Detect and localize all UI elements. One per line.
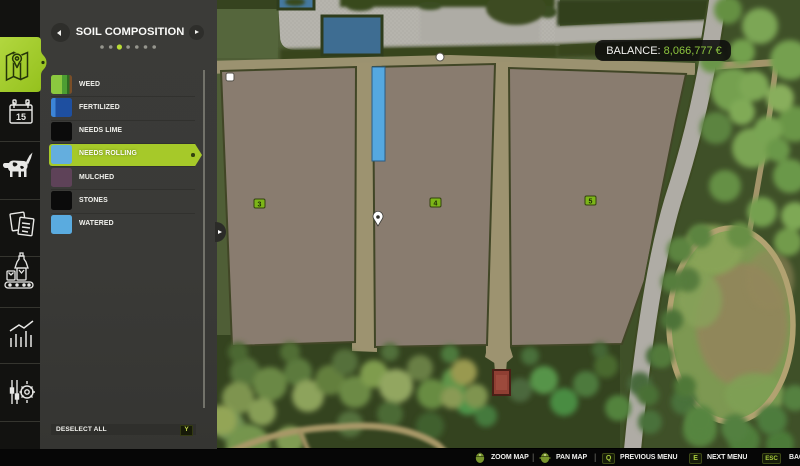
svg-text:5: 5 xyxy=(589,199,593,206)
svg-text:3: 3 xyxy=(258,202,262,209)
svg-text:15: 15 xyxy=(16,112,26,122)
svg-text:4: 4 xyxy=(434,201,438,208)
